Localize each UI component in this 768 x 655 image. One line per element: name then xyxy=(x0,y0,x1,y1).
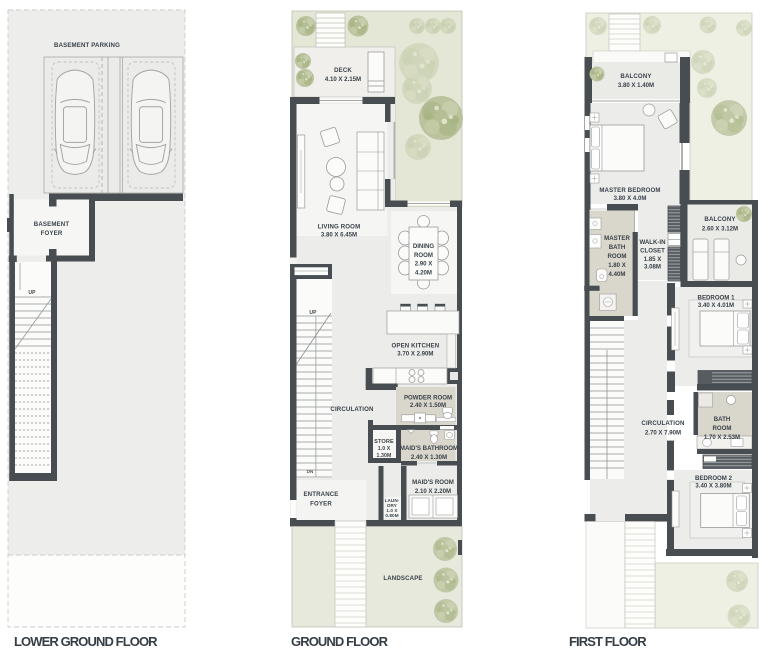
svg-text:CIRCULATION: CIRCULATION xyxy=(641,420,684,427)
svg-text:BASEMENT: BASEMENT xyxy=(34,221,70,228)
svg-text:2.40 X 1.50M: 2.40 X 1.50M xyxy=(410,402,446,409)
svg-text:FOYER: FOYER xyxy=(310,501,332,508)
svg-text:OPEN KITCHEN: OPEN KITCHEN xyxy=(391,343,439,350)
svg-text:ROOM: ROOM xyxy=(414,252,433,259)
svg-text:0.80M: 0.80M xyxy=(385,513,398,518)
svg-text:4.40M: 4.40M xyxy=(609,271,626,278)
svg-text:2.40 X 1.30M: 2.40 X 1.30M xyxy=(411,454,447,461)
svg-text:GROUND FLOOR: GROUND FLOOR xyxy=(291,634,389,649)
svg-text:LIVING ROOM: LIVING ROOM xyxy=(318,223,361,230)
svg-text:FOYER: FOYER xyxy=(41,230,63,237)
svg-text:BATH: BATH xyxy=(609,244,625,251)
svg-text:1.80 X: 1.80 X xyxy=(608,262,627,269)
svg-text:MAID'S BATHROOM: MAID'S BATHROOM xyxy=(400,445,458,452)
svg-text:UP: UP xyxy=(28,290,36,296)
svg-text:LOWER GROUND FLOOR: LOWER GROUND FLOOR xyxy=(14,634,158,649)
svg-text:FIRST FLOOR: FIRST FLOOR xyxy=(569,634,647,649)
svg-text:1.70 X 2.53M: 1.70 X 2.53M xyxy=(704,434,740,441)
svg-text:ROOM: ROOM xyxy=(608,253,627,260)
svg-text:LANDSCAPE: LANDSCAPE xyxy=(383,575,422,582)
svg-text:3.70 X 2.90M: 3.70 X 2.90M xyxy=(397,351,433,358)
svg-text:CIRCULATION: CIRCULATION xyxy=(330,406,373,413)
svg-text:BASEMENT PARKING: BASEMENT PARKING xyxy=(54,42,120,49)
svg-text:3.40 X 4.01M: 3.40 X 4.01M xyxy=(698,302,734,309)
svg-text:3.40 X 3.80M: 3.40 X 3.80M xyxy=(695,483,731,490)
svg-text:3.80 X 4.0M: 3.80 X 4.0M xyxy=(614,195,647,202)
svg-text:ROOM: ROOM xyxy=(713,425,732,432)
svg-text:MASTER: MASTER xyxy=(604,235,630,242)
svg-text:BEDROOM 2: BEDROOM 2 xyxy=(695,475,733,482)
svg-text:1.0 X: 1.0 X xyxy=(378,446,391,452)
svg-text:STORE: STORE xyxy=(374,439,394,445)
svg-text:ENTRANCE: ENTRANCE xyxy=(303,491,338,498)
svg-text:3.80 X 1.40M: 3.80 X 1.40M xyxy=(618,82,654,89)
svg-text:1.85 X: 1.85 X xyxy=(644,256,663,263)
svg-text:DN: DN xyxy=(307,469,314,474)
svg-text:3.80 X 6.45M: 3.80 X 6.45M xyxy=(321,231,357,238)
svg-text:2.60 X 3.12M: 2.60 X 3.12M xyxy=(702,226,738,233)
svg-text:2.90 X: 2.90 X xyxy=(415,261,434,268)
svg-text:4.20M: 4.20M xyxy=(415,269,432,276)
svg-text:3.08M: 3.08M xyxy=(644,264,661,271)
svg-text:MASTER BEDROOM: MASTER BEDROOM xyxy=(599,187,660,194)
svg-text:2.10 X 2.20M: 2.10 X 2.20M xyxy=(415,488,451,495)
svg-text:UP: UP xyxy=(309,310,317,316)
svg-text:4.10 X 2.15M: 4.10 X 2.15M xyxy=(325,76,361,83)
svg-text:2.70 X 7.90M: 2.70 X 7.90M xyxy=(645,430,681,437)
svg-text:POWDER ROOM: POWDER ROOM xyxy=(404,395,452,402)
svg-text:BEDROOM 1: BEDROOM 1 xyxy=(698,295,736,302)
svg-text:BATH: BATH xyxy=(714,416,730,423)
svg-text:BALCONY: BALCONY xyxy=(620,73,651,80)
svg-text:WALK-IN: WALK-IN xyxy=(639,239,665,246)
svg-text:DINING: DINING xyxy=(413,243,435,250)
svg-text:MAID'S ROOM: MAID'S ROOM xyxy=(412,479,454,486)
svg-text:CLOSET: CLOSET xyxy=(640,248,665,255)
svg-text:BALCONY: BALCONY xyxy=(704,216,735,223)
svg-text:DECK: DECK xyxy=(334,67,352,74)
svg-text:1.30M: 1.30M xyxy=(377,453,392,459)
